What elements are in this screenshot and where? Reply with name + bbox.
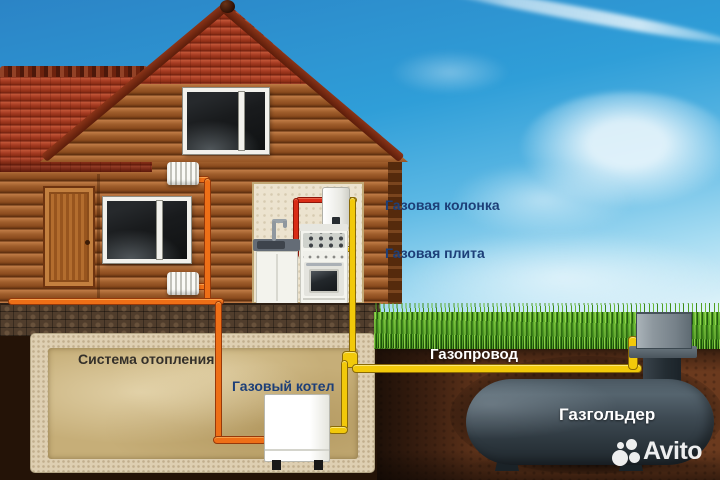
gas-pipe-vertical-boiler: [341, 360, 348, 430]
roof-finial: [220, 0, 235, 13]
window-reflection: [107, 227, 187, 259]
gas-water-heater: [322, 187, 350, 229]
stove-backsplash: [300, 224, 348, 231]
window-reflection: [187, 118, 265, 150]
stove-burners: [303, 233, 345, 248]
heating-pipe-vertical-basement: [215, 301, 222, 441]
gas-boiler: [264, 394, 330, 462]
label-gas-stove: Газовая плита: [385, 245, 485, 261]
boiler-foot: [272, 460, 281, 470]
label-gas-holder: Газгольдер: [559, 405, 655, 425]
wall-corner-shadow: [97, 174, 100, 302]
entry-door: [43, 186, 95, 288]
door-panel: [49, 192, 89, 282]
avito-logo-dots: [629, 452, 640, 463]
gable-window: [183, 88, 269, 154]
heating-pipe-to-boiler: [213, 436, 267, 444]
avito-logo-dots: [612, 450, 628, 466]
cloud-streak: [411, 0, 720, 50]
sink-cabinet: [256, 251, 298, 304]
gas-pipeline-underground: [352, 364, 642, 373]
window-mullion: [157, 201, 162, 259]
faucet-tip: [283, 221, 287, 228]
sink-basin: [257, 241, 285, 249]
radiator-lower: [167, 272, 199, 295]
label-gas-pipeline: Газопровод: [430, 346, 518, 363]
avito-logo-dots: [626, 439, 637, 450]
radiator-upper: [167, 162, 199, 185]
door-knob: [85, 240, 90, 245]
house-log-ends: [388, 158, 402, 304]
boiler-trim: [265, 449, 329, 451]
heating-pipe-vertical-upper: [204, 178, 211, 304]
gas-supply-illustration: Газовая колонка Газовая плита Система от…: [0, 0, 720, 480]
avito-watermark: Avito: [611, 438, 720, 470]
stove-controls: [303, 251, 345, 259]
faucet-riser: [272, 221, 276, 241]
gas-stove: [300, 229, 348, 304]
stove-drawer-line: [303, 298, 345, 300]
cabinet-door-line: [276, 254, 278, 301]
avito-wordmark: Avito: [643, 437, 702, 466]
oven-window: [309, 269, 339, 293]
label-gas-boiler: Газовый котел: [232, 378, 335, 394]
gas-pipe-to-boiler: [328, 426, 348, 434]
avito-logo-dots: [617, 442, 624, 449]
stone-foundation: [0, 303, 380, 336]
tank-hatch-cover: [636, 312, 692, 349]
heating-pipe-floor-horizontal: [8, 298, 224, 305]
window-mullion: [239, 92, 244, 150]
cloud: [390, 50, 510, 95]
label-gas-water-heater: Газовая колонка: [385, 197, 500, 213]
first-floor-window: [103, 197, 191, 263]
boiler-foot: [314, 460, 323, 470]
roof-ridge: [0, 66, 150, 77]
gas-pipe-vertical-house: [349, 197, 356, 361]
label-heating-system: Система отопления: [78, 351, 214, 367]
oven-handle: [306, 263, 342, 266]
